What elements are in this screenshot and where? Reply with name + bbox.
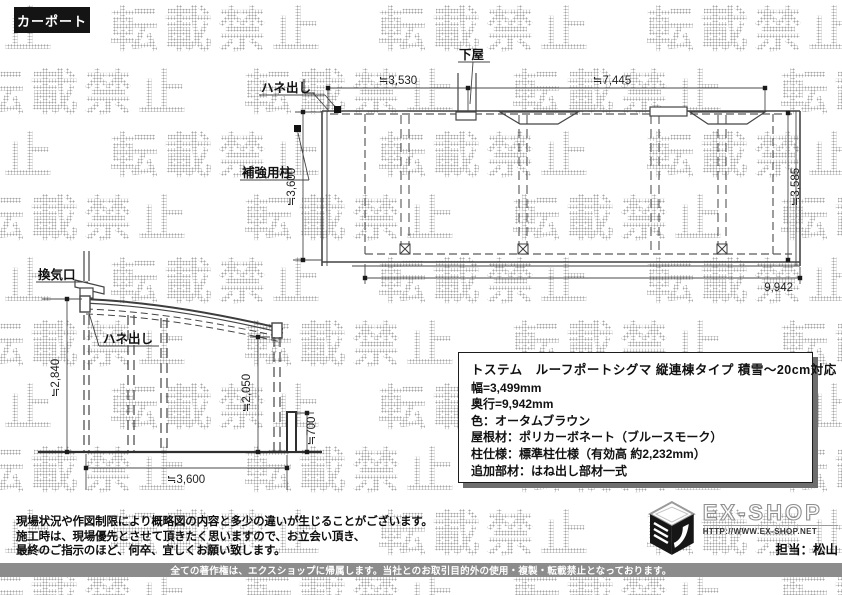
copyright-text: 全ての著作権は、エクスショップに帰属します。当社とのお取引目的外の使用・複製・転…	[170, 563, 671, 577]
side-view: ≒2,840 ≒2,050 ≒700 ≒3,600 換気口 ハネ出し	[36, 251, 322, 490]
vent-shape	[75, 280, 104, 298]
roof-notch	[650, 107, 687, 116]
boundary-wall	[287, 412, 296, 452]
geya-structure	[456, 73, 476, 120]
spec-additional: 追加部材：はね出し部材一式	[471, 463, 800, 480]
spec-width: 幅=3,499mm	[471, 380, 800, 397]
plan-dim-top-left: ≒3,530	[379, 75, 417, 87]
side-dim-wall-height: ≒700	[306, 417, 318, 446]
contact-person: 担当：松山	[703, 539, 838, 558]
post-marks	[400, 244, 727, 254]
roof-right-bracket	[272, 323, 282, 338]
vent-label: 換気口	[38, 267, 76, 282]
plan-dimension-lines	[293, 88, 800, 284]
geya-label: 下屋	[459, 47, 485, 62]
disclaimer-text: 現場状況や作図制限により概略図の内容と多少の違いが生じることがございます。 施工…	[16, 515, 433, 559]
disclaimer-line: 施工時は、現場優先とさせて頂きたく思いますので、お立会い頂き、	[16, 530, 433, 545]
side-dim-front-height: ≒2,050	[241, 374, 253, 412]
carport-drawing-page: 転載禁止転載禁止転載禁止転載禁止転載禁止転載禁止転載禁止転載禁止転載禁止転載禁止…	[0, 0, 842, 595]
side-dim-rear-height: ≒2,840	[50, 359, 62, 397]
exshop-logo: EX-SHOP HTTP://WWW.EX-SHOP.NET 担当：松山	[648, 501, 838, 558]
plan-view: ≒3,530 ≒7,445 9,942 ≒3,600 ≒3,585 下屋 ハネ出…	[240, 47, 802, 294]
roof-left-bracket	[80, 296, 90, 312]
plan-beams	[401, 115, 726, 250]
spec-pillar: 柱仕様：標準柱仕様（有効高 約2,232mm）	[471, 446, 800, 463]
hanedashi-side-label: ハネ出し	[103, 331, 153, 346]
hanedashi-plan-label: ハネ出し	[261, 80, 311, 95]
spec-box: トステム ルーフポートシグマ 縦連棟タイプ 積雪～20cm対応 幅=3,499m…	[458, 352, 813, 483]
exshop-url: HTTP://WWW.EX-SHOP.NET	[703, 525, 838, 536]
exshop-cube-icon	[648, 501, 696, 557]
plan-dim-bottom: 9,942	[764, 282, 793, 294]
spec-depth: 奥行=9,942mm	[471, 396, 800, 413]
exshop-wordmark: EX-SHOP	[703, 501, 838, 525]
plan-dim-top-right: ≒7,445	[593, 75, 631, 87]
copyright-bar: 全ての著作権は、エクスショップに帰属します。当社とのお取引目的外の使用・複製・転…	[0, 563, 842, 577]
disclaimer-line: 最終のご指示のほど、何卒、宜しくお願い致します。	[16, 544, 433, 559]
reinforce-pillar-label: 補強用柱	[241, 165, 293, 180]
disclaimer-line: 現場状況や作図制限により概略図の内容と多少の違いが生じることがございます。	[16, 515, 433, 530]
spec-product-name: トステム ルーフポートシグマ 縦連棟タイプ 積雪～20cm対応	[471, 362, 800, 379]
page-title-label: カーポート	[17, 11, 87, 30]
plan-dim-right: ≒3,585	[790, 168, 802, 206]
spec-color: 色：オータムブラウン	[471, 413, 800, 430]
spec-roof-material: 屋根材：ポリカーボネート（ブルースモーク）	[471, 429, 800, 446]
side-dim-width: ≒3,600	[167, 474, 205, 486]
page-title: カーポート	[14, 7, 90, 33]
